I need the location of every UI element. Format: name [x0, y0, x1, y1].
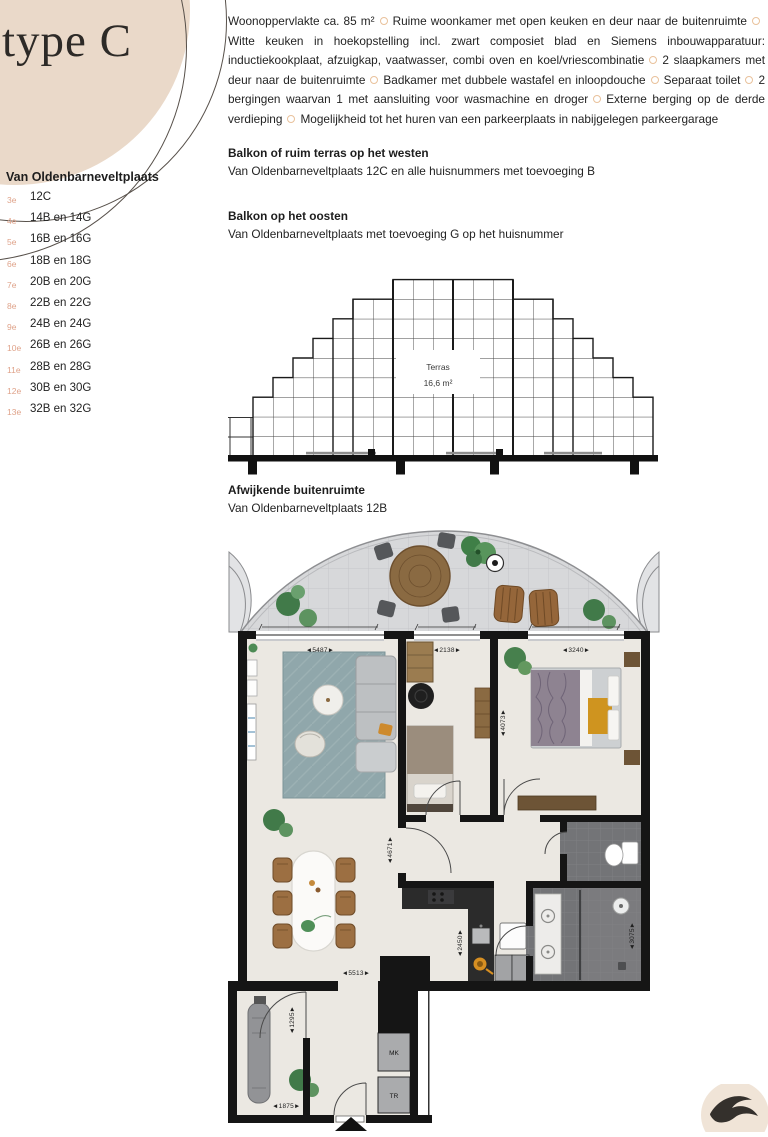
dim-bed2-window: ◄3240►	[562, 647, 591, 654]
brand-logo	[698, 1084, 768, 1132]
edge-line	[428, 991, 430, 1115]
address-row: 5e16B en 16G	[6, 229, 216, 250]
address-row: 10e26B en 26G	[6, 335, 216, 356]
unit-numbers: 20B en 20G	[30, 276, 91, 288]
unit-numbers: 32B en 32G	[30, 403, 91, 415]
bullet-icon	[593, 95, 601, 103]
apartment-type-title: type C	[2, 14, 132, 68]
address-row: 7e20B en 20G	[6, 272, 216, 293]
sofa-chaise	[356, 742, 396, 772]
nightstand	[624, 750, 640, 765]
unit-numbers: 26B en 26G	[30, 339, 91, 351]
dim-living-window: ◄5487►	[306, 647, 335, 654]
feature-text: Mogelijkheid tot het huren van een parke…	[300, 112, 718, 126]
address-row: 6e18B en 18G	[6, 251, 216, 272]
dim-kitchen: ◄2450►	[457, 929, 464, 958]
address-row: 12e30B en 30G	[6, 378, 216, 399]
round-chair	[408, 683, 434, 709]
section-balkon-west: Balkon of ruim terras op het westen Van …	[228, 146, 765, 178]
section-title: Afwijkende buitenruimte	[228, 483, 765, 497]
unit-numbers: 28B en 28G	[30, 361, 91, 373]
terrace-doors-windows	[256, 631, 624, 641]
feature-text: Ruime woonkamer met open keuken en deur …	[393, 14, 747, 28]
feature-text: Badkamer met dubbele wastafel en inloopd…	[383, 73, 645, 87]
section-title: Balkon of ruim terras op het westen	[228, 146, 765, 160]
shower-drain	[618, 962, 626, 970]
bullet-icon	[649, 56, 657, 64]
floorplan: MK TR	[228, 528, 660, 1132]
terras-label: Terras	[426, 362, 450, 372]
double-washbasin	[535, 894, 561, 974]
neighbor-terrace-fragment	[228, 418, 253, 456]
dim-living-depth: ◄4671►	[387, 836, 394, 865]
section-body: Van Oldenbarneveltplaats 12C en alle hui…	[228, 164, 765, 178]
address-row: 3e12C	[6, 187, 216, 208]
toilet-icon	[605, 844, 623, 866]
section-afwijkende-buitenruimte: Afwijkende buitenruimte Van Oldenbarneve…	[228, 483, 765, 515]
unit-numbers: 14B en 14G	[30, 212, 91, 224]
closet-label: MK	[389, 1050, 399, 1057]
bullet-icon	[370, 76, 378, 84]
bullet-icon	[380, 17, 388, 25]
unit-numbers: 22B en 22G	[30, 297, 91, 309]
dim-bathroom: ◄3075►	[629, 922, 636, 951]
terras-area-label: 16,6 m²	[424, 378, 453, 388]
dim-storage-depth: ◄1295►	[289, 1006, 296, 1035]
nightstand	[624, 652, 640, 667]
address-row: 8e22B en 22G	[6, 293, 216, 314]
unit-numbers: 30B en 30G	[30, 382, 91, 394]
address-row: 13e32B en 32G	[6, 399, 216, 420]
appliance-block	[495, 955, 512, 981]
unit-numbers: 16B en 16G	[30, 233, 91, 245]
address-list: Van Oldenbarneveltplaats 3e12C 4e14B en …	[6, 170, 216, 420]
unit-numbers: 24B en 24G	[30, 318, 91, 330]
description-column: Woonoppervlakte ca. 85 m²Ruime woonkamer…	[228, 12, 765, 130]
floor-number: 13e	[7, 402, 21, 423]
wardrobe	[407, 642, 433, 682]
feature-text: Separaat toilet	[664, 73, 741, 87]
kitchen-tall-cabinet	[380, 956, 430, 981]
bullet-icon	[651, 76, 659, 84]
section-balkon-oost: Balkon op het oosten Van Oldenbarneveltp…	[228, 209, 765, 241]
feature-text: Woonoppervlakte ca. 85 m²	[228, 14, 375, 28]
address-row: 4e14B en 14G	[6, 208, 216, 229]
dining-table	[292, 851, 335, 951]
unit-numbers: 18B en 18G	[30, 255, 91, 267]
address-row: 11e28B en 28G	[6, 357, 216, 378]
baseline-posts	[248, 462, 639, 475]
dim-bed2-depth: ◄4073►	[500, 709, 507, 738]
bullet-icon	[745, 76, 753, 84]
bullet-icon	[752, 17, 760, 25]
armchair	[295, 731, 325, 757]
address-list-title: Van Oldenbarneveltplaats	[6, 170, 216, 184]
section-body: Van Oldenbarneveltplaats met toevoeging …	[228, 227, 765, 241]
baseline-wall	[228, 455, 658, 462]
parasol-base-icon	[487, 555, 504, 572]
storage-box	[254, 996, 266, 1004]
shelf-cabinet	[475, 688, 490, 738]
wall-plant-icon	[249, 644, 258, 653]
section-title: Balkon op het oosten	[228, 209, 765, 223]
dresser	[518, 796, 596, 810]
closet-label: TR	[390, 1093, 399, 1100]
feature-paragraph: Woonoppervlakte ca. 85 m²Ruime woonkamer…	[228, 12, 765, 130]
dim-storage-width: ◄1875►	[272, 1103, 301, 1110]
sink	[472, 928, 490, 944]
terrace-grid-diagram: Terras 16,6 m²	[228, 278, 658, 480]
address-row: 9e24B en 24G	[6, 314, 216, 335]
dim-bed1-window: ◄2138►	[433, 647, 462, 654]
bullet-icon	[287, 115, 295, 123]
section-body: Van Oldenbarneveltplaats 12B	[228, 501, 765, 515]
unit-numbers: 12C	[30, 191, 51, 203]
dim-living-bottom: ◄5513►	[342, 970, 371, 977]
